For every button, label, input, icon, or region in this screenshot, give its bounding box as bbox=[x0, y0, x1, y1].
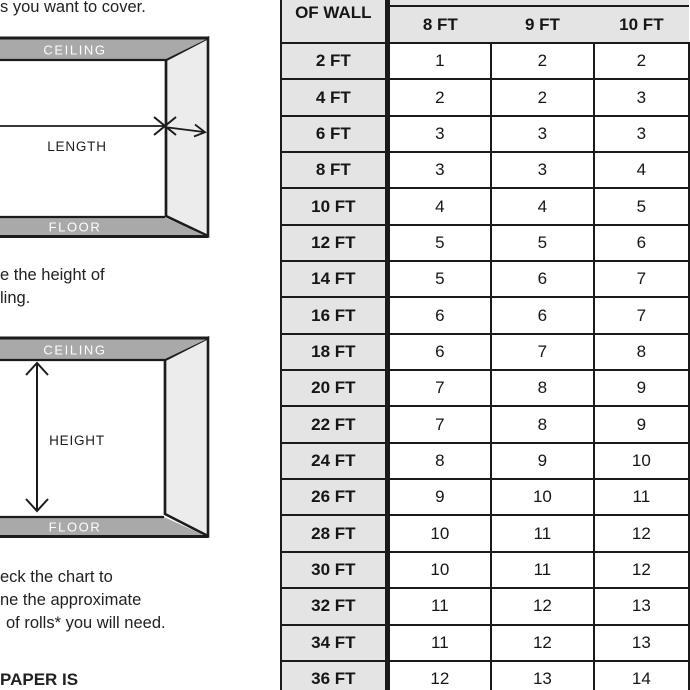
floor-label: FLOOR bbox=[49, 220, 102, 235]
table-row-8-ft: 8 FT334 bbox=[281, 152, 689, 188]
row-label-18-ft: 18 FT bbox=[281, 334, 387, 370]
rolls-value-28-ft-9-ft: 11 bbox=[491, 515, 594, 551]
row-label-10-ft: 10 FT bbox=[281, 188, 387, 224]
rolls-value-34-ft-9-ft: 12 bbox=[491, 625, 594, 661]
rolls-value-32-ft-9-ft: 12 bbox=[491, 588, 594, 624]
table-row-10-ft: 10 FT445 bbox=[281, 188, 689, 224]
rolls-value-6-ft-9-ft: 3 bbox=[491, 116, 594, 152]
rolls-value-32-ft-10-ft: 13 bbox=[594, 588, 689, 624]
rolls-value-16-ft-10-ft: 7 bbox=[594, 297, 689, 333]
table-row-22-ft: 22 FT789 bbox=[281, 406, 689, 442]
rolls-value-26-ft-10-ft: 11 bbox=[594, 479, 689, 515]
rolls-chart-table: OF WALL 8 FT9 FT10 FT 2 FT1224 FT2236 FT… bbox=[280, 0, 690, 690]
rolls-value-12-ft-8-ft: 5 bbox=[387, 225, 491, 261]
rolls-value-2-ft-10-ft: 2 bbox=[594, 43, 689, 79]
rolls-value-14-ft-9-ft: 6 bbox=[491, 261, 594, 297]
footnote-fragment: PAPER IS bbox=[0, 669, 78, 690]
rolls-value-34-ft-8-ft: 11 bbox=[387, 625, 491, 661]
table-row-28-ft: 28 FT101112 bbox=[281, 515, 689, 551]
row-label-6-ft: 6 FT bbox=[281, 116, 387, 152]
rolls-value-36-ft-9-ft: 13 bbox=[491, 661, 594, 690]
rolls-value-34-ft-10-ft: 13 bbox=[594, 625, 689, 661]
rolls-value-36-ft-10-ft: 14 bbox=[594, 661, 689, 690]
rolls-value-4-ft-9-ft: 2 bbox=[491, 79, 594, 115]
table-row-36-ft: 36 FT121314 bbox=[281, 661, 689, 690]
rolls-value-22-ft-8-ft: 7 bbox=[387, 406, 491, 442]
rolls-value-20-ft-9-ft: 8 bbox=[491, 370, 594, 406]
row-label-8-ft: 8 FT bbox=[281, 152, 387, 188]
rolls-value-28-ft-8-ft: 10 bbox=[387, 515, 491, 551]
rolls-value-22-ft-9-ft: 8 bbox=[491, 406, 594, 442]
row-label-14-ft: 14 FT bbox=[281, 261, 387, 297]
col-header-10-ft: 10 FT bbox=[594, 6, 689, 43]
instruction-step3-line2: ne the approximate bbox=[0, 589, 166, 612]
row-label-30-ft: 30 FT bbox=[281, 552, 387, 588]
row-label-28-ft: 28 FT bbox=[281, 515, 387, 551]
row-label-34-ft: 34 FT bbox=[281, 625, 387, 661]
table-row-16-ft: 16 FT667 bbox=[281, 297, 689, 333]
table-row-14-ft: 14 FT567 bbox=[281, 261, 689, 297]
rolls-value-8-ft-10-ft: 4 bbox=[594, 152, 689, 188]
table-row-32-ft: 32 FT111213 bbox=[281, 588, 689, 624]
rolls-value-24-ft-10-ft: 10 bbox=[594, 443, 689, 479]
instruction-step3-fragment: eck the chart to ne the approximate of r… bbox=[0, 566, 166, 635]
table-row-24-ft: 24 FT8910 bbox=[281, 443, 689, 479]
table-row-30-ft: 30 FT101112 bbox=[281, 552, 689, 588]
ceiling-label: CEILING bbox=[43, 343, 106, 358]
floor-label: FLOOR bbox=[49, 520, 102, 535]
rolls-value-30-ft-10-ft: 12 bbox=[594, 552, 689, 588]
rolls-value-6-ft-10-ft: 3 bbox=[594, 116, 689, 152]
length-label: LENGTH bbox=[47, 139, 107, 154]
row-label-20-ft: 20 FT bbox=[281, 370, 387, 406]
rolls-value-30-ft-9-ft: 11 bbox=[491, 552, 594, 588]
rolls-value-10-ft-9-ft: 4 bbox=[491, 188, 594, 224]
rolls-value-6-ft-8-ft: 3 bbox=[387, 116, 491, 152]
wallpaper-estimating-guide-page: s you want to cover. CEILING FLOOR LENGT… bbox=[0, 0, 690, 690]
table-row-6-ft: 6 FT333 bbox=[281, 116, 689, 152]
row-label-22-ft: 22 FT bbox=[281, 406, 387, 442]
rolls-value-14-ft-8-ft: 5 bbox=[387, 261, 491, 297]
rolls-value-24-ft-8-ft: 8 bbox=[387, 443, 491, 479]
rolls-value-18-ft-10-ft: 8 bbox=[594, 334, 689, 370]
row-label-36-ft: 36 FT bbox=[281, 661, 387, 690]
rolls-value-28-ft-10-ft: 12 bbox=[594, 515, 689, 551]
row-label-24-ft: 24 FT bbox=[281, 443, 387, 479]
instruction-step3-line1: eck the chart to bbox=[0, 566, 166, 589]
length-diagram: CEILING FLOOR LENGTH bbox=[0, 35, 213, 239]
rolls-value-30-ft-8-ft: 10 bbox=[387, 552, 491, 588]
rolls-value-24-ft-9-ft: 9 bbox=[491, 443, 594, 479]
instruction-step1-fragment: s you want to cover. bbox=[0, 0, 146, 17]
rolls-value-20-ft-8-ft: 7 bbox=[387, 370, 491, 406]
height-diagram: CEILING FLOOR HEIGHT bbox=[0, 334, 213, 539]
table-row-2-ft: 2 FT122 bbox=[281, 43, 689, 79]
instruction-step2-line1: e the height of bbox=[0, 264, 105, 287]
rolls-value-16-ft-9-ft: 6 bbox=[491, 297, 594, 333]
rolls-value-8-ft-9-ft: 3 bbox=[491, 152, 594, 188]
rolls-value-8-ft-8-ft: 3 bbox=[387, 152, 491, 188]
rolls-value-2-ft-8-ft: 1 bbox=[387, 43, 491, 79]
side-wall-shape bbox=[166, 38, 208, 236]
row-label-4-ft: 4 FT bbox=[281, 79, 387, 115]
rolls-value-26-ft-8-ft: 9 bbox=[387, 479, 491, 515]
table-row-12-ft: 12 FT556 bbox=[281, 225, 689, 261]
rolls-value-4-ft-8-ft: 2 bbox=[387, 79, 491, 115]
vertical-double-arrow-icon bbox=[26, 363, 48, 511]
instruction-step2-fragment: e the height of ling. bbox=[0, 264, 105, 310]
table-row-20-ft: 20 FT789 bbox=[281, 370, 689, 406]
instruction-step3-line3: of rolls* you will need. bbox=[0, 612, 166, 635]
rolls-value-22-ft-10-ft: 9 bbox=[594, 406, 689, 442]
rolls-value-18-ft-8-ft: 6 bbox=[387, 334, 491, 370]
rolls-value-20-ft-10-ft: 9 bbox=[594, 370, 689, 406]
table-row-18-ft: 18 FT678 bbox=[281, 334, 689, 370]
col-header-9-ft: 9 FT bbox=[491, 6, 594, 43]
rolls-value-12-ft-10-ft: 6 bbox=[594, 225, 689, 261]
col-header-8-ft: 8 FT bbox=[387, 6, 491, 43]
rolls-value-12-ft-9-ft: 5 bbox=[491, 225, 594, 261]
rolls-value-2-ft-9-ft: 2 bbox=[491, 43, 594, 79]
side-wall-shape bbox=[165, 338, 208, 536]
rolls-value-18-ft-9-ft: 7 bbox=[491, 334, 594, 370]
corner-header-of-wall: OF WALL bbox=[281, 0, 387, 43]
rolls-value-10-ft-8-ft: 4 bbox=[387, 188, 491, 224]
row-label-16-ft: 16 FT bbox=[281, 297, 387, 333]
table-row-4-ft: 4 FT223 bbox=[281, 79, 689, 115]
row-label-32-ft: 32 FT bbox=[281, 588, 387, 624]
table-row-34-ft: 34 FT111213 bbox=[281, 625, 689, 661]
rolls-value-4-ft-10-ft: 3 bbox=[594, 79, 689, 115]
rolls-value-10-ft-10-ft: 5 bbox=[594, 188, 689, 224]
rolls-value-16-ft-8-ft: 6 bbox=[387, 297, 491, 333]
rolls-value-36-ft-8-ft: 12 bbox=[387, 661, 491, 690]
height-label: HEIGHT bbox=[49, 433, 105, 448]
rolls-value-32-ft-8-ft: 11 bbox=[387, 588, 491, 624]
instruction-step2-line2: ling. bbox=[0, 287, 105, 310]
rolls-value-26-ft-9-ft: 10 bbox=[491, 479, 594, 515]
ceiling-label: CEILING bbox=[43, 43, 106, 58]
rolls-value-14-ft-10-ft: 7 bbox=[594, 261, 689, 297]
row-label-26-ft: 26 FT bbox=[281, 479, 387, 515]
row-label-2-ft: 2 FT bbox=[281, 43, 387, 79]
table-row-26-ft: 26 FT91011 bbox=[281, 479, 689, 515]
row-label-12-ft: 12 FT bbox=[281, 225, 387, 261]
